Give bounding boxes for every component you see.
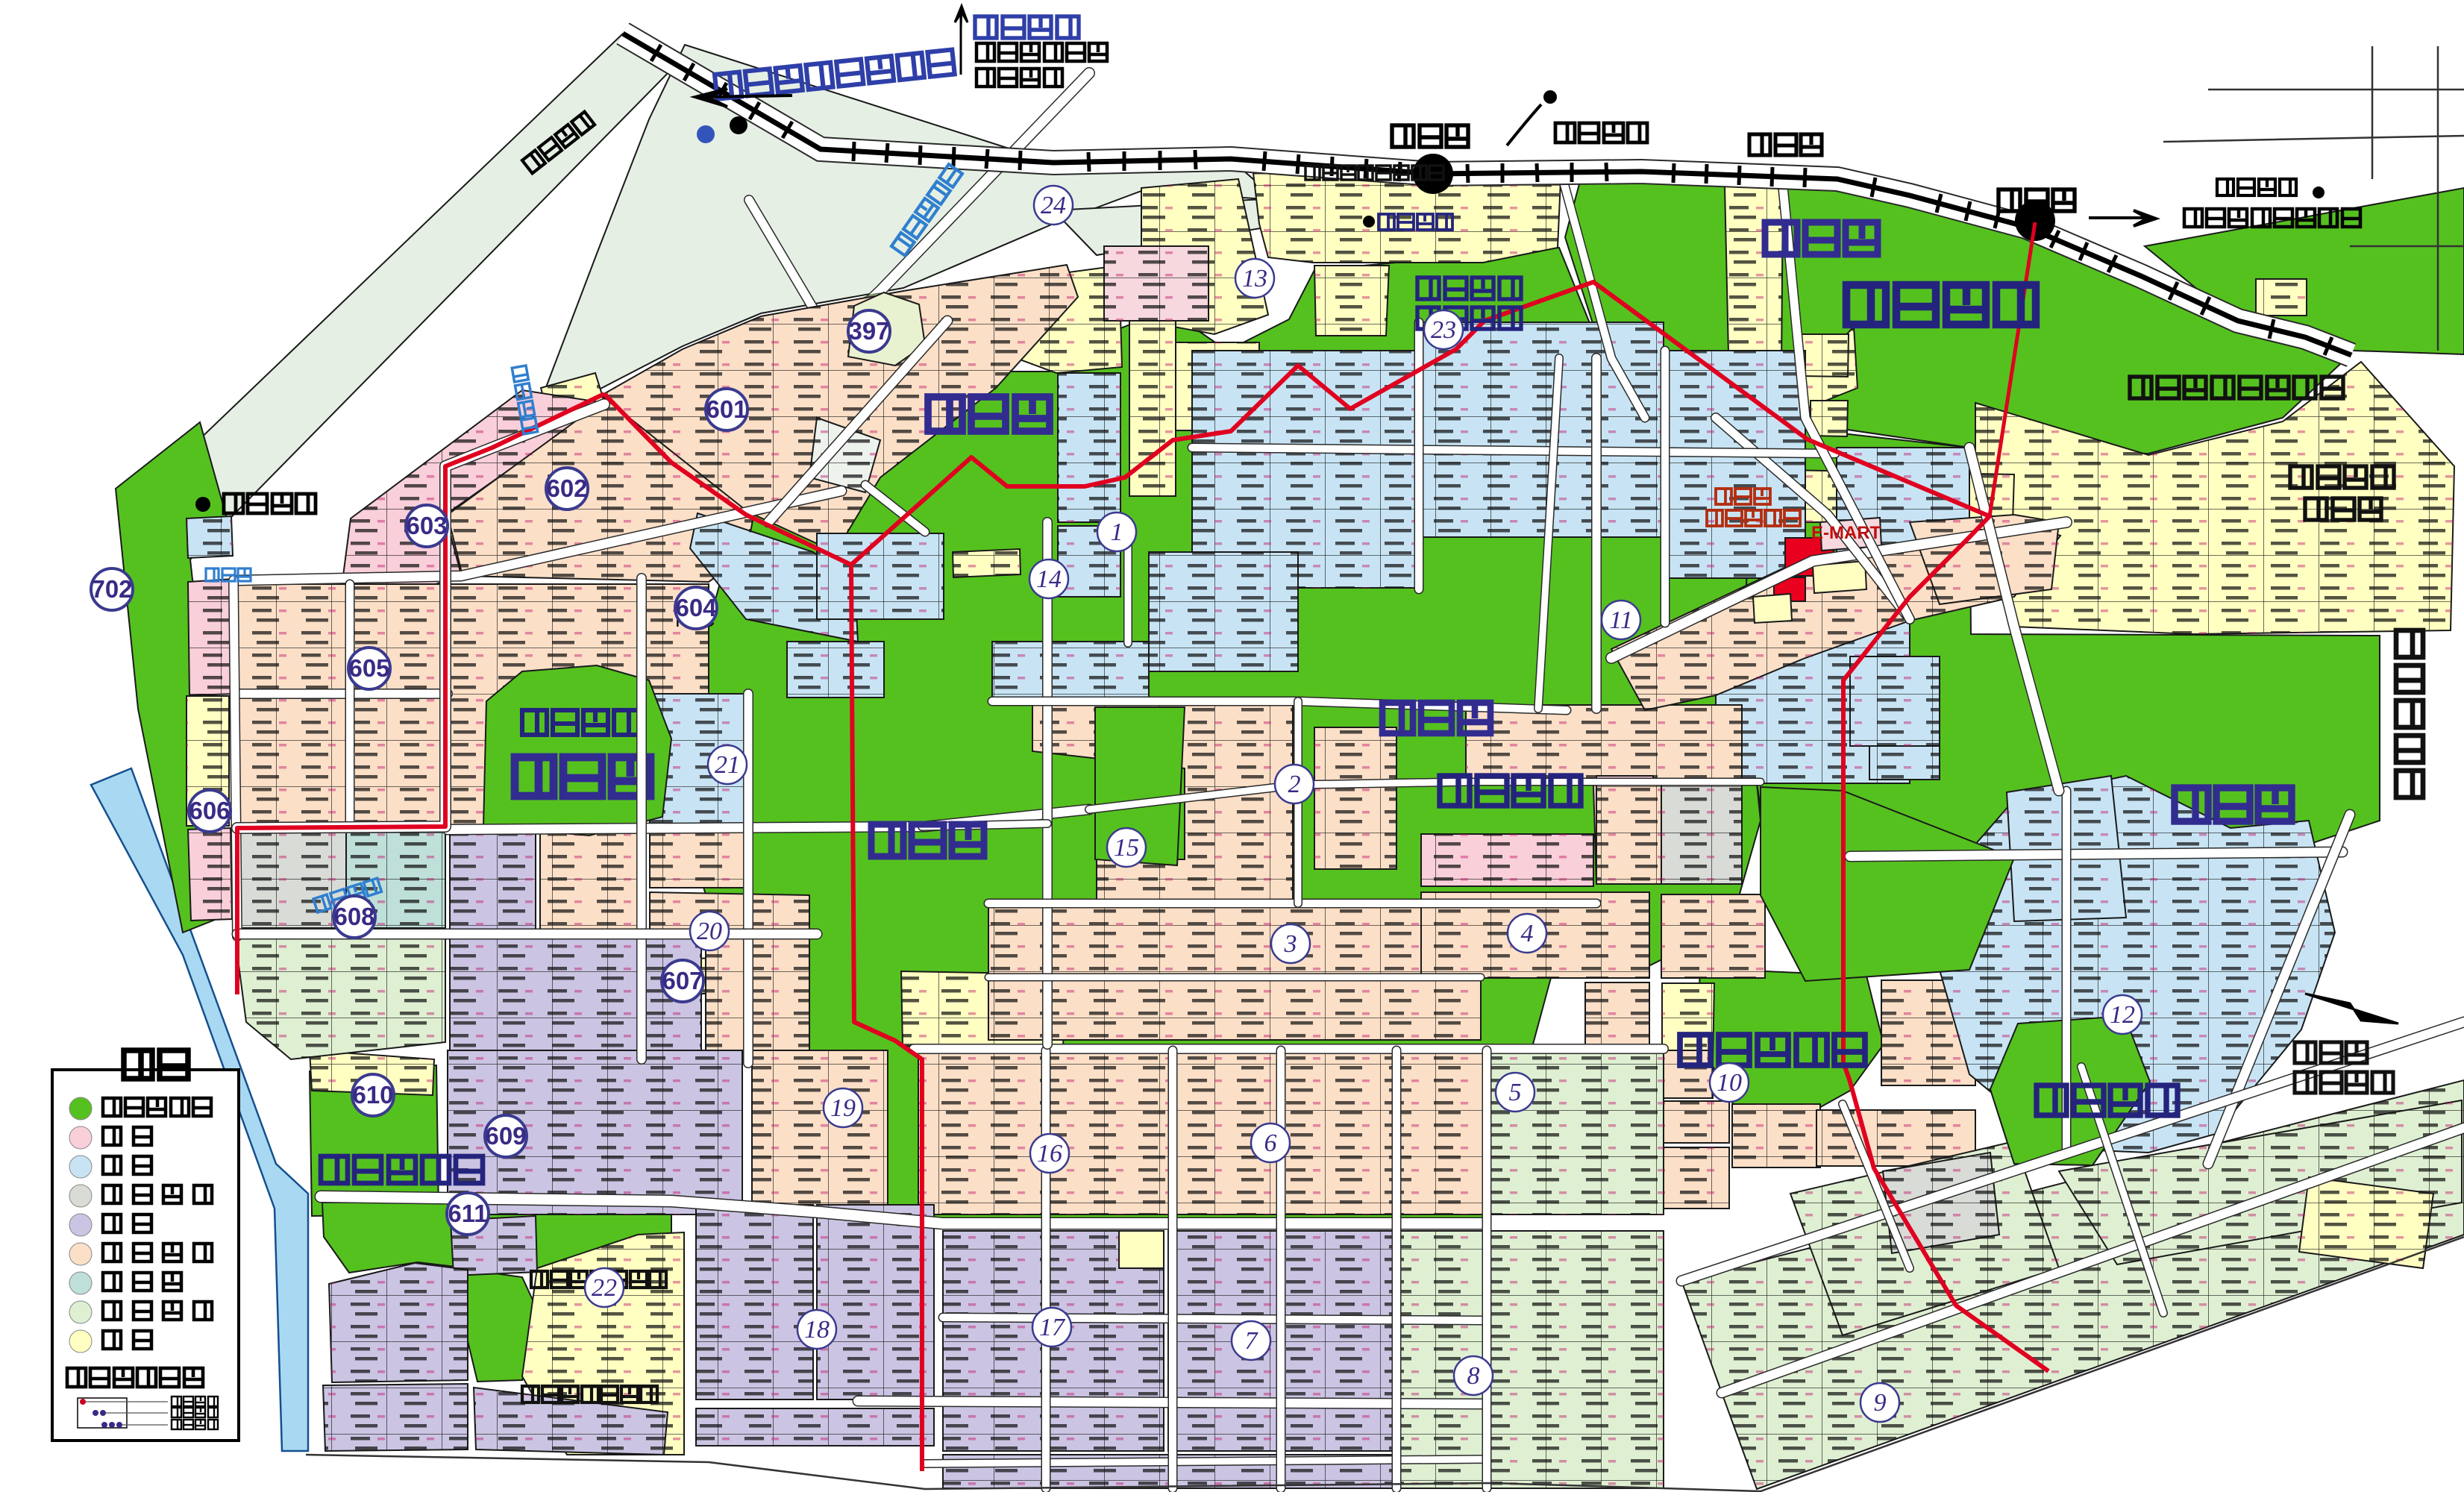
- svg-text:605: 605: [348, 654, 389, 682]
- svg-text:397: 397: [848, 317, 889, 345]
- svg-text:608: 608: [333, 903, 374, 930]
- svg-text:18: 18: [804, 1316, 830, 1344]
- svg-text:5: 5: [1509, 1079, 1522, 1106]
- svg-text:9: 9: [1874, 1389, 1887, 1417]
- svg-text:602: 602: [546, 474, 587, 502]
- svg-text:611: 611: [448, 1200, 487, 1227]
- svg-text:14: 14: [1036, 565, 1062, 593]
- svg-text:24: 24: [1041, 192, 1066, 219]
- svg-text:17: 17: [1039, 1314, 1066, 1341]
- svg-text:8: 8: [1467, 1362, 1480, 1390]
- svg-text:16: 16: [1037, 1140, 1062, 1167]
- svg-text:12: 12: [2110, 1001, 2135, 1029]
- svg-text:3: 3: [1284, 930, 1297, 958]
- svg-text:4: 4: [1521, 920, 1534, 947]
- svg-text:19: 19: [830, 1094, 856, 1122]
- svg-text:609: 609: [485, 1122, 526, 1150]
- svg-text:610: 610: [352, 1081, 393, 1109]
- svg-text:15: 15: [1114, 834, 1139, 862]
- svg-text:606: 606: [189, 797, 230, 824]
- svg-text:607: 607: [662, 967, 703, 994]
- svg-text:13: 13: [1242, 265, 1267, 292]
- svg-text:1: 1: [1111, 518, 1123, 546]
- svg-text:7: 7: [1245, 1327, 1259, 1355]
- svg-text:20: 20: [697, 918, 722, 945]
- svg-text:11: 11: [1609, 606, 1632, 634]
- svg-text:22: 22: [592, 1274, 617, 1302]
- svg-text:2: 2: [1288, 771, 1301, 798]
- svg-text:603: 603: [406, 512, 447, 539]
- svg-text:10: 10: [1717, 1069, 1742, 1097]
- svg-text:6: 6: [1264, 1129, 1277, 1157]
- svg-text:604: 604: [675, 594, 717, 621]
- svg-text:23: 23: [1431, 316, 1456, 344]
- svg-text:E-MART: E-MART: [1811, 523, 1881, 543]
- svg-text:702: 702: [91, 575, 132, 603]
- svg-text:21: 21: [715, 751, 740, 779]
- svg-text:601: 601: [706, 395, 747, 423]
